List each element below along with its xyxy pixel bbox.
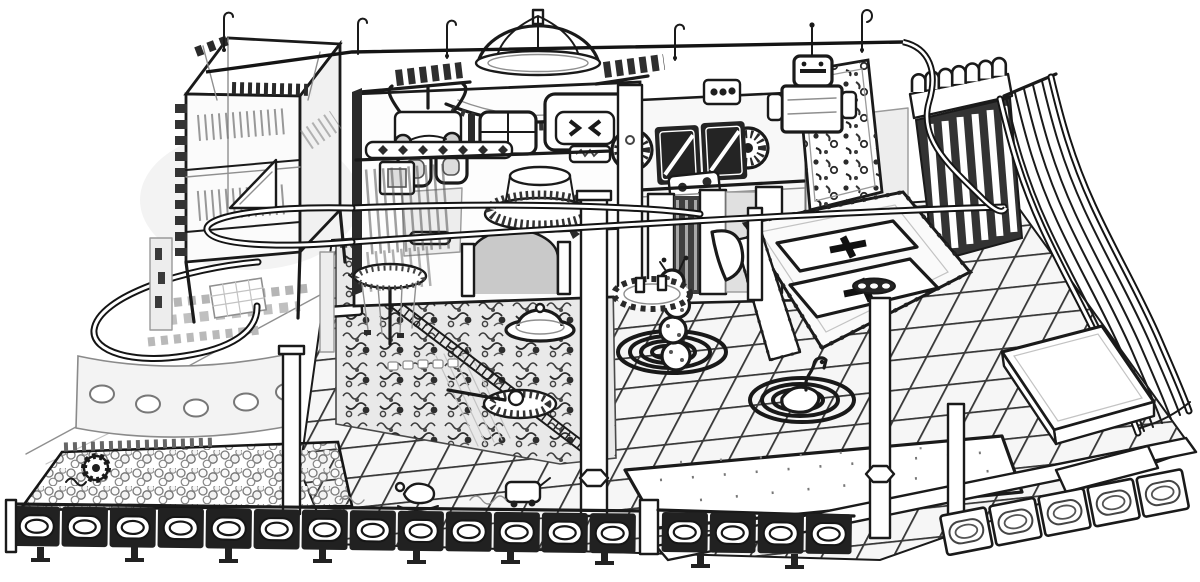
court-badge [853, 279, 895, 294]
fence-post [640, 500, 658, 554]
observatory-dome [476, 10, 600, 75]
playground-sketch-figure: Black-and-white pencil edge-sketch of an… [0, 0, 1200, 582]
ball-pit [20, 442, 352, 510]
far-left-wall [150, 238, 172, 330]
hex-collar [866, 466, 894, 482]
paddle-wheel [84, 456, 108, 480]
sign-panel [570, 146, 610, 162]
roof-slats-right [604, 62, 664, 70]
camera-box [704, 80, 740, 104]
hex-collar-center [580, 470, 608, 486]
playground-sketch: Black-and-white pencil edge-sketch of an… [0, 0, 1200, 582]
facade-column [618, 85, 642, 300]
roof-slats-left [396, 70, 462, 78]
